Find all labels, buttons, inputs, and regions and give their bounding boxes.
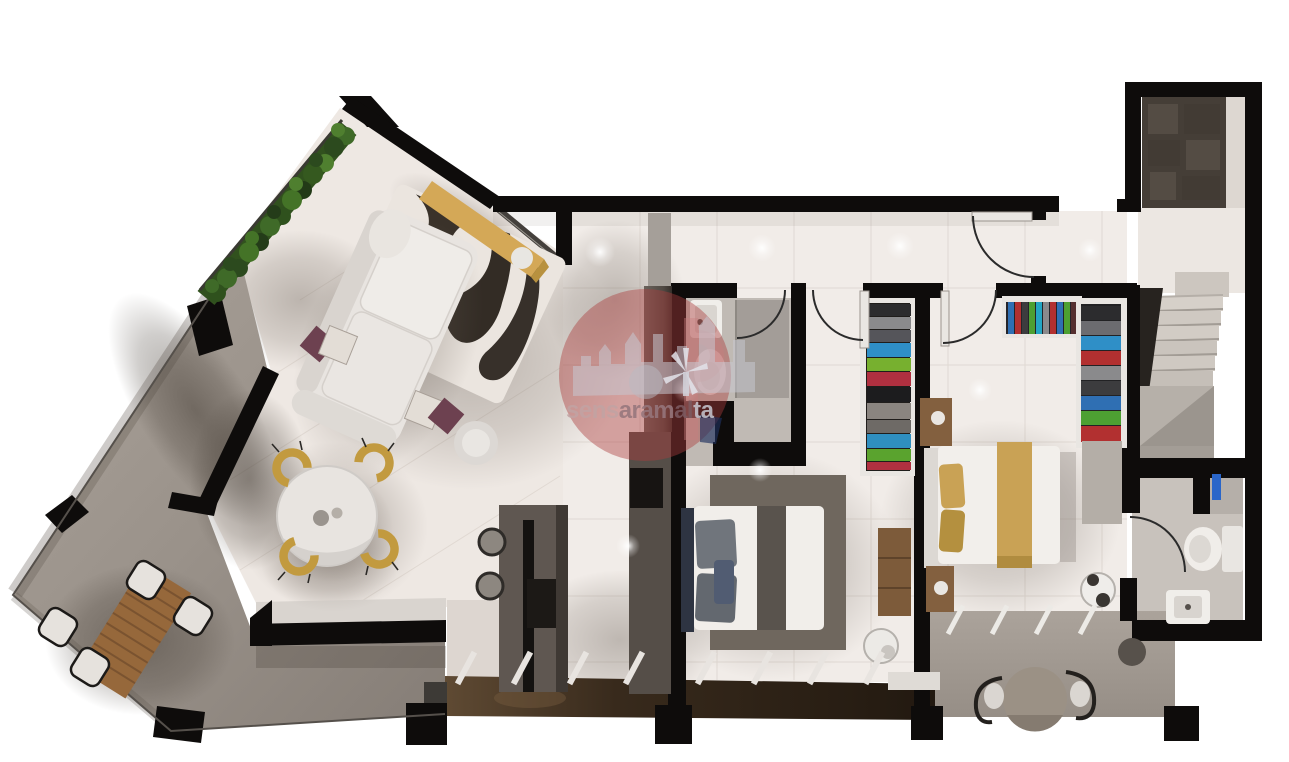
svg-text:sensaramalta: sensaramalta <box>566 397 715 424</box>
